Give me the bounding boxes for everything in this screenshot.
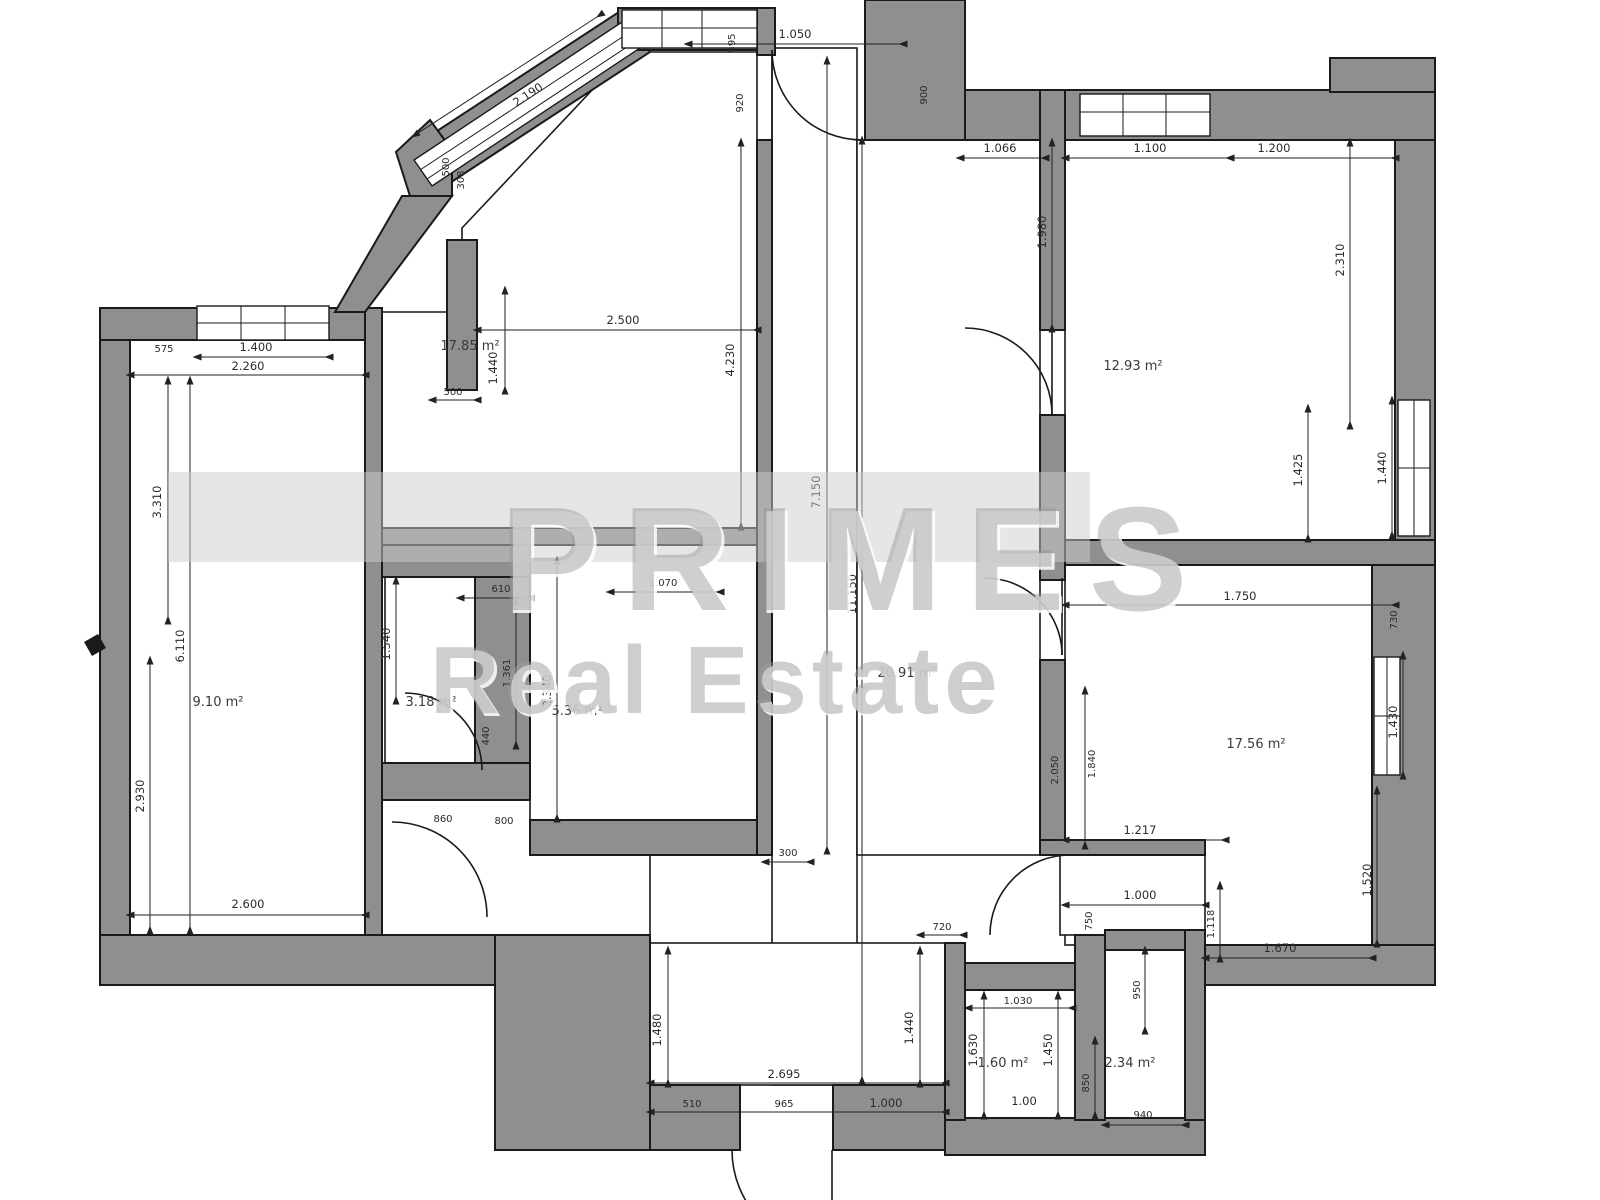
dimension-label: 510	[682, 1099, 701, 1110]
dimension-label: 720	[932, 922, 951, 933]
dimension-label: 940	[1133, 1110, 1152, 1121]
dimension-label: 950	[1132, 980, 1143, 999]
wall-bay-connector	[335, 196, 452, 312]
dimension-label: 1.000	[870, 1096, 903, 1110]
room-area-label: 17.56 m²	[1226, 737, 1285, 752]
dimension-label: 1.000	[1124, 888, 1157, 902]
dimension-label: 1.430	[1386, 706, 1400, 739]
room-area-label: 1.60 m²	[978, 1056, 1029, 1071]
window-left-room	[197, 306, 329, 340]
wall-right-bottom	[1205, 945, 1435, 985]
dimension-label: 1.217	[1124, 823, 1157, 837]
wall-wc-bottom	[945, 1118, 1205, 1155]
wall-hall-bottom-left	[650, 1085, 740, 1150]
dimension-label: 920	[735, 93, 746, 112]
dimension-label: 1.200	[1258, 141, 1291, 155]
room-area-label: 9.10 m²	[193, 695, 244, 710]
dimension-label: 1.520	[1360, 864, 1374, 897]
dimension-label: 2.930	[133, 780, 147, 813]
dimension-label: 1.440	[902, 1012, 916, 1045]
dimension-label: 1.980	[1035, 216, 1049, 249]
dimension-label: 2.260	[232, 359, 265, 373]
dimension-label: 6.110	[173, 630, 187, 663]
wall-top-mass	[865, 0, 965, 140]
dimension-label: 500	[443, 387, 462, 398]
dimension-label: 1.00	[1011, 1094, 1037, 1108]
dimension-label: 2.695	[768, 1067, 801, 1081]
dimension-label: 750	[1084, 911, 1095, 930]
wall-stub	[447, 240, 477, 390]
dimension-label: 595	[727, 33, 738, 52]
room-area-label: 12.93 m²	[1103, 359, 1162, 374]
dimension-label: 860	[433, 814, 452, 825]
dimension-label: 1.030	[1004, 996, 1033, 1007]
dimension-label: 1.750	[1224, 589, 1257, 603]
dimension-label: 575	[154, 344, 173, 355]
dimension-label: 800	[494, 816, 513, 827]
dimension-label: 1.670	[1264, 941, 1297, 955]
dimension-label: 850	[1081, 1073, 1092, 1092]
dimension-label: 500	[441, 157, 452, 176]
dimension-label: 300	[778, 848, 797, 859]
dimension-label: 1.066	[984, 141, 1017, 155]
dimension-label: 730	[1389, 610, 1400, 629]
window-top-right	[1080, 94, 1210, 136]
wall-storage-right	[1185, 930, 1205, 1120]
window-right-upper	[1398, 400, 1430, 536]
dimension-label: 1.840	[1087, 750, 1098, 779]
wall-left-band	[100, 340, 130, 985]
dimension-label: 2.310	[1333, 244, 1347, 277]
dimension-label: 1.480	[650, 1014, 664, 1047]
dimension-label: 2.500	[607, 313, 640, 327]
dimension-label: 2.600	[232, 897, 265, 911]
dimension-label: 1.050	[779, 27, 812, 41]
wall-top-pier	[757, 8, 775, 55]
dimension-label: 1.118	[1206, 910, 1217, 939]
floor-plan-page: 2.190 1.050 595 920 900 500 308 1.066 1.…	[0, 0, 1600, 1200]
door-entrance	[732, 1150, 832, 1200]
watermark-brand: PRIMES	[500, 477, 1211, 642]
dimension-label: 1.540	[379, 628, 393, 661]
dimension-label: 1.450	[1041, 1034, 1055, 1067]
wall-bottom-left	[100, 935, 495, 985]
wall-hall-bottom-right	[833, 1085, 945, 1150]
wall-passage-top	[1040, 840, 1205, 855]
dimension-label: 1.425	[1291, 454, 1305, 487]
wall-kitchen-bottom	[530, 820, 772, 855]
wall-top-right-step	[1330, 58, 1435, 92]
dimension-label: 1.440	[486, 352, 500, 385]
dimension-label: 3.310	[150, 486, 164, 519]
dimension-label: 1.440	[1375, 452, 1389, 485]
floor-left-room	[130, 340, 365, 935]
watermark-subtitle: Real Estate	[430, 627, 1003, 734]
dimension-label: 1.100	[1134, 141, 1167, 155]
floor-top-center-room	[382, 52, 757, 528]
dimension-label: 900	[919, 85, 930, 104]
room-area-label: 17.85 m²	[440, 339, 499, 354]
wall-left-inner	[365, 308, 382, 938]
wall-bottom-mid-chunk	[495, 935, 650, 1150]
floor-plan-svg: 2.190 1.050 595 920 900 500 308 1.066 1.…	[0, 0, 1600, 1200]
door-wc-passage	[990, 855, 1070, 935]
wall-bath-bottom	[382, 763, 530, 800]
dimension-label: 308	[456, 170, 467, 189]
floor-hall	[650, 943, 945, 1085]
dimension-label: 2.050	[1050, 756, 1061, 785]
dimension-label: 965	[774, 1099, 793, 1110]
room-area-label: 2.34 m²	[1105, 1056, 1156, 1071]
wall-wc-left	[945, 943, 965, 1120]
wall-corridor-right-3	[1040, 660, 1065, 840]
dimension-label: 4.230	[723, 344, 737, 377]
wall-wc-top	[965, 963, 1075, 990]
dimension-label: 1.400	[240, 340, 273, 354]
